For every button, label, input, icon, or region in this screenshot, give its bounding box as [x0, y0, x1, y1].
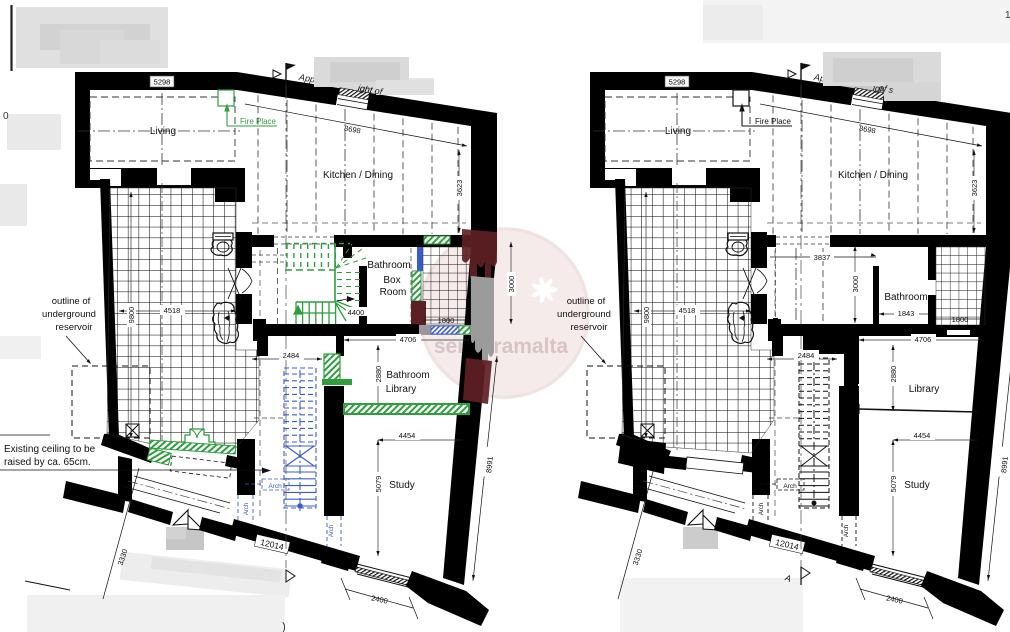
svg-text:1843: 1843 [898, 309, 915, 318]
svg-text:Box: Box [383, 275, 400, 286]
svg-text:2484: 2484 [283, 351, 300, 360]
svg-text:2880: 2880 [889, 366, 898, 383]
svg-text:5298: 5298 [669, 78, 686, 87]
svg-text:Bathroom: Bathroom [884, 292, 927, 303]
svg-text:8991: 8991 [484, 456, 495, 474]
svg-text:1800: 1800 [438, 316, 455, 325]
svg-text:Living: Living [665, 126, 691, 137]
svg-text:9800: 9800 [127, 307, 136, 324]
svg-text:4518: 4518 [679, 306, 696, 315]
svg-text:Arch: Arch [329, 525, 335, 537]
svg-text:Existing ceiling to be: Existing ceiling to be [4, 444, 96, 455]
svg-text:Arch: Arch [783, 483, 797, 490]
svg-text:8991: 8991 [999, 456, 1010, 474]
svg-text:Library: Library [386, 384, 417, 395]
svg-text:5079: 5079 [889, 476, 898, 493]
svg-text:Kitchen / Dining: Kitchen / Dining [838, 170, 908, 181]
svg-text:sensaramalta: sensaramalta [434, 335, 569, 358]
svg-text:Kitchen / Dining: Kitchen / Dining [323, 170, 393, 181]
svg-text:2484: 2484 [798, 351, 815, 360]
svg-text:outline of: outline of [567, 296, 606, 307]
svg-text:4454: 4454 [399, 431, 416, 440]
svg-text:Living: Living [150, 126, 176, 137]
svg-text:4706: 4706 [915, 335, 932, 344]
svg-text:reservoir: reservoir [571, 322, 608, 333]
svg-text:5079: 5079 [374, 476, 383, 493]
svg-text:underground: underground [557, 309, 611, 320]
svg-text:2880: 2880 [374, 366, 383, 383]
svg-text:4518: 4518 [164, 306, 181, 315]
svg-text:Study: Study [904, 480, 930, 491]
svg-text:Arch: Arch [759, 503, 765, 515]
svg-text:Bathroom: Bathroom [367, 260, 410, 271]
svg-text:4454: 4454 [914, 431, 931, 440]
svg-text:Library: Library [909, 384, 940, 395]
svg-text:3000: 3000 [507, 276, 516, 293]
svg-text:underground: underground [42, 309, 96, 320]
svg-text:outline of: outline of [52, 296, 91, 307]
svg-text:Arch: Arch [244, 503, 250, 515]
svg-text:raised by ca. 65cm.: raised by ca. 65cm. [4, 457, 91, 468]
svg-text:Arch: Arch [844, 525, 850, 537]
svg-text:3837: 3837 [814, 253, 831, 262]
svg-text:3623: 3623 [455, 180, 464, 197]
svg-text:3000: 3000 [851, 276, 860, 293]
svg-text:3623: 3623 [970, 180, 979, 197]
svg-text:1800: 1800 [952, 315, 969, 324]
svg-text:Study: Study [389, 480, 415, 491]
svg-text:Arch: Arch [268, 483, 282, 490]
svg-text:Bathroom: Bathroom [386, 370, 429, 381]
svg-text:Room: Room [380, 287, 407, 298]
svg-text:4400: 4400 [348, 308, 365, 317]
svg-text:4706: 4706 [400, 335, 417, 344]
svg-text:1: 1 [1005, 10, 1010, 21]
svg-text:reservoir: reservoir [56, 322, 93, 333]
svg-text:9800: 9800 [642, 307, 651, 324]
svg-text:): ) [282, 621, 286, 632]
svg-text:5298: 5298 [154, 78, 171, 87]
svg-text:0: 0 [3, 111, 9, 122]
